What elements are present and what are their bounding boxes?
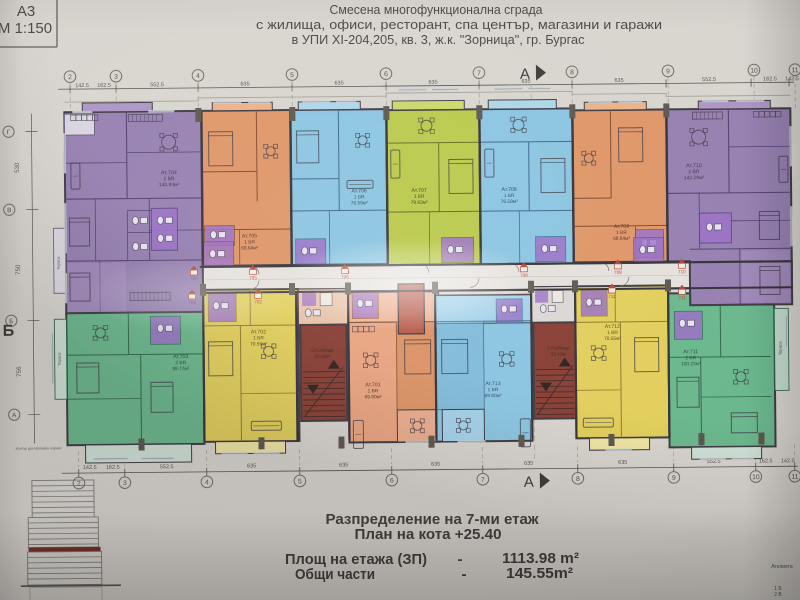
svg-text:705: 705	[249, 275, 257, 280]
svg-text:1 BR: 1 BR	[368, 388, 379, 394]
svg-text:Ат.711: Ат.711	[683, 349, 698, 355]
svg-text:635: 635	[618, 460, 627, 466]
svg-text:710: 710	[678, 269, 686, 274]
svg-text:11: 11	[791, 474, 798, 481]
svg-text:Ат.707: Ат.707	[411, 188, 426, 194]
svg-text:11: 11	[791, 67, 798, 74]
svg-text:4: 4	[196, 73, 200, 80]
svg-text:2: 2	[77, 481, 81, 488]
svg-text:2 BR: 2 BR	[175, 360, 186, 366]
svg-text:Ат.705: Ат.705	[242, 233, 257, 239]
svg-text:Ат.706: Ат.706	[351, 188, 366, 194]
svg-text:68.64м²: 68.64м²	[613, 236, 630, 242]
svg-text:1 BR: 1 BR	[607, 330, 618, 336]
svg-text:5: 5	[298, 478, 302, 485]
svg-text:Г: Г	[7, 129, 11, 136]
svg-text:8: 8	[576, 476, 580, 483]
svg-text:70.55м²: 70.55м²	[250, 341, 267, 347]
svg-text:6: 6	[390, 478, 394, 485]
svg-text:552.5: 552.5	[702, 77, 716, 83]
svg-text:1 BR: 1 BR	[488, 387, 499, 393]
svg-text:706: 706	[341, 274, 349, 279]
svg-text:2 BR: 2 BR	[685, 355, 696, 361]
svg-text:Ат.713: Ат.713	[485, 381, 500, 387]
svg-text:69.80м²: 69.80м²	[485, 393, 502, 399]
svg-text:10: 10	[752, 474, 760, 481]
svg-text:9: 9	[666, 68, 670, 75]
svg-text:99.77м²: 99.77м²	[172, 366, 189, 372]
svg-text:79.93м²: 79.93м²	[411, 200, 428, 206]
svg-text:Ат.703: Ат.703	[173, 354, 188, 360]
svg-text:3: 3	[123, 480, 127, 487]
svg-text:635: 635	[428, 80, 437, 86]
svg-text:Ат.701: Ат.701	[365, 382, 380, 388]
svg-text:709: 709	[614, 270, 622, 275]
svg-text:Б: Б	[3, 323, 15, 340]
svg-text:142.5: 142.5	[75, 83, 89, 89]
svg-text:М 1:150: М 1:150	[0, 20, 52, 37]
svg-text:68.64м²: 68.64м²	[241, 245, 258, 251]
svg-text:1 BR: 1 BR	[253, 335, 264, 341]
svg-text:750: 750	[15, 264, 22, 275]
svg-text:552.5: 552.5	[160, 464, 174, 470]
svg-text:А: А	[12, 412, 17, 419]
svg-text:69.80м²: 69.80м²	[365, 394, 382, 400]
svg-text:9: 9	[672, 475, 676, 482]
svg-text:-: -	[462, 566, 467, 583]
svg-text:Ателиета: Ателиета	[771, 564, 793, 570]
svg-text:22.42м²: 22.42м²	[315, 354, 331, 359]
svg-text:в УПИ XI-204,205, кв. 3, ж.к.: в УПИ XI-204,205, кв. 3, ж.к. "Зорница",…	[292, 32, 585, 47]
svg-text:с жилища, офиси, ресторант, сп: с жилища, офиси, ресторант, спа център, …	[256, 17, 662, 32]
svg-text:142.5: 142.5	[785, 76, 799, 82]
svg-text:7: 7	[481, 477, 485, 484]
svg-text:711: 711	[678, 295, 686, 300]
svg-text:1 BR: 1 BR	[616, 230, 627, 236]
svg-text:Смесена многофункционална сгра: Смесена многофункционална сграда	[330, 2, 544, 17]
svg-text:1 BR: 1 BR	[504, 193, 515, 199]
svg-text:1 BR: 1 BR	[244, 239, 255, 245]
svg-text:Контур декоративен корниз: Контур декоративен корниз	[16, 446, 62, 450]
svg-text:Тераса: Тераса	[57, 352, 62, 366]
svg-text:3: 3	[114, 74, 118, 81]
svg-text:756: 756	[16, 366, 23, 377]
svg-text:В: В	[7, 207, 12, 214]
svg-text:162.5: 162.5	[763, 76, 777, 82]
svg-text:142.5: 142.5	[781, 458, 795, 464]
svg-text:76.59м²: 76.59м²	[351, 200, 368, 206]
svg-text:145.55m²: 145.55m²	[506, 565, 573, 582]
svg-text:635: 635	[247, 463, 256, 469]
svg-text:6: 6	[384, 71, 388, 78]
svg-text:552.5: 552.5	[150, 82, 164, 88]
svg-text:План на кота +25.40: План на кота +25.40	[355, 526, 502, 543]
svg-text:635: 635	[524, 461, 533, 467]
svg-text:Ат.712: Ат.712	[605, 324, 620, 330]
svg-text:704: 704	[190, 276, 198, 281]
svg-text:635: 635	[240, 81, 249, 87]
svg-text:Ат.708: Ат.708	[501, 187, 516, 193]
svg-text:703: 703	[188, 300, 196, 305]
svg-text:7: 7	[477, 70, 481, 77]
svg-text:22.42м²: 22.42м²	[551, 351, 567, 356]
svg-text:1 BR: 1 BR	[414, 194, 425, 200]
svg-text:142.5: 142.5	[83, 465, 97, 471]
svg-text:712: 712	[608, 294, 616, 299]
svg-text:530: 530	[14, 162, 21, 173]
svg-text:5: 5	[290, 72, 294, 79]
svg-text:142.29м²: 142.29м²	[684, 175, 705, 181]
svg-text:Стълбище: Стълбище	[311, 348, 334, 353]
svg-text:100.23м²: 100.23м²	[681, 361, 701, 367]
svg-text:Стълбище: Стълбище	[547, 345, 570, 350]
svg-text:Ат.702: Ат.702	[251, 329, 266, 335]
svg-text:1 BR: 1 BR	[354, 194, 365, 200]
svg-text:10: 10	[750, 68, 758, 75]
svg-text:162.5: 162.5	[106, 465, 120, 471]
svg-text:Тераса: Тераса	[56, 256, 61, 270]
svg-text:635: 635	[334, 81, 343, 87]
svg-text:635: 635	[431, 462, 440, 468]
svg-text:76.59м²: 76.59м²	[501, 199, 518, 205]
svg-text:708: 708	[520, 273, 528, 278]
svg-text:2 В: 2 В	[774, 592, 782, 598]
svg-text:635: 635	[614, 78, 623, 84]
svg-text:702: 702	[254, 299, 262, 304]
svg-text:8: 8	[570, 69, 574, 76]
svg-text:162.5: 162.5	[759, 458, 773, 464]
svg-text:162.5: 162.5	[97, 83, 111, 89]
svg-text:Ат.709: Ат.709	[614, 224, 629, 230]
svg-text:635: 635	[339, 463, 348, 469]
svg-text:2: 2	[68, 74, 72, 81]
svg-text:Тераса: Тераса	[778, 341, 783, 355]
svg-text:Общи части: Общи части	[295, 566, 375, 583]
svg-text:4: 4	[205, 479, 209, 486]
svg-text:70.55м²: 70.55м²	[604, 336, 621, 342]
svg-text:А: А	[524, 474, 534, 491]
svg-text:А: А	[520, 66, 530, 83]
svg-text:А3: А3	[17, 3, 35, 20]
svg-text:140.93м²: 140.93м²	[159, 182, 180, 188]
